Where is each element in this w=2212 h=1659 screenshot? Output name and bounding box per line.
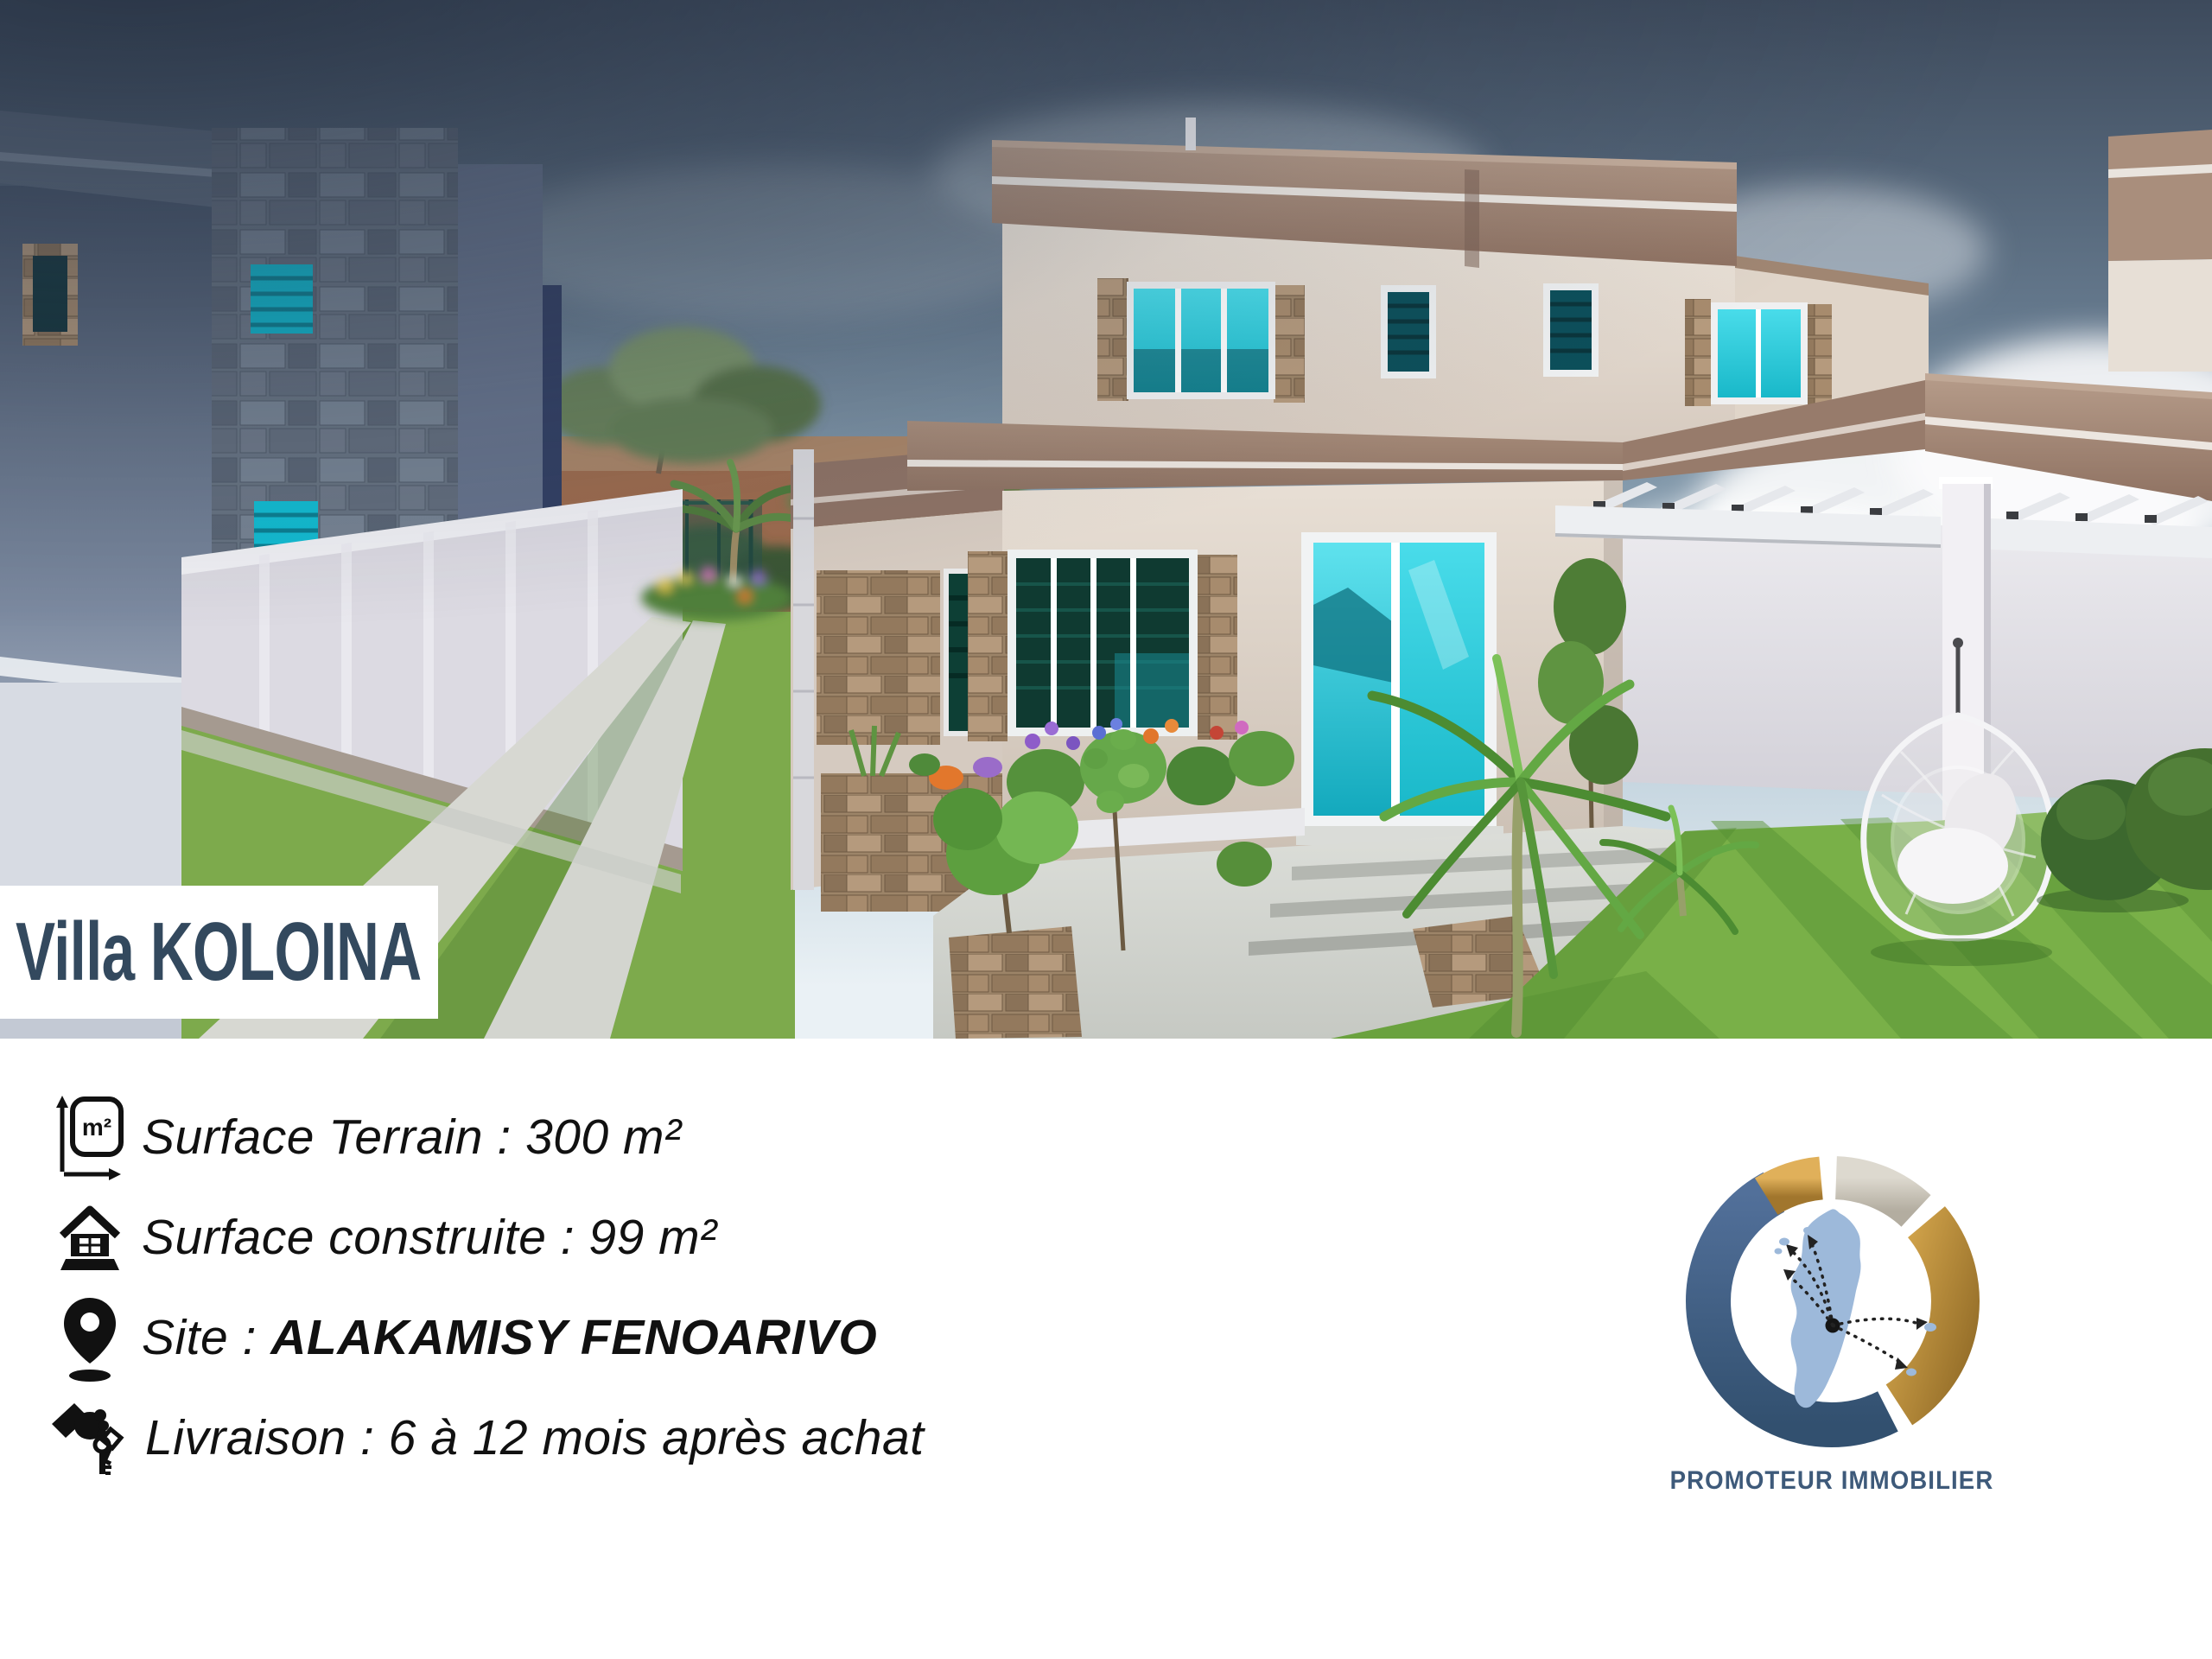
real-estate-flyer: Villa KOLOINA m² Surface Terrain : 300 m… [0, 0, 2212, 1659]
detail-value: 6 à 12 mois après achat [389, 1410, 925, 1465]
smoke-overlay [0, 0, 2212, 778]
logo-caption: PROMOTEUR IMMOBILIER [1669, 1466, 1994, 1496]
page-title: Villa KOLOINA [16, 905, 421, 1000]
logo-arc-gold-top [1766, 1179, 1821, 1197]
detail-separator: : [483, 1109, 525, 1165]
detail-separator: : [546, 1210, 588, 1265]
detail-separator: : [346, 1410, 389, 1465]
logo-arc-gold-right [1899, 1222, 1955, 1405]
detail-value: 99 m² [588, 1210, 716, 1265]
detail-label: Surface Terrain [142, 1109, 483, 1165]
detail-label: Livraison [145, 1410, 346, 1465]
detail-row-surface-terrain: m² Surface Terrain : 300 m² [50, 1087, 925, 1187]
house-icon [50, 1201, 130, 1274]
detail-label: Surface construite [142, 1210, 546, 1265]
area-icon: m² [50, 1092, 130, 1182]
area-icon-label: m² [82, 1114, 111, 1141]
villa-render-image [0, 0, 2212, 1039]
detail-row-livraison: Livraison : 6 à 12 mois après achat [50, 1388, 925, 1488]
detail-value: 300 m² [525, 1109, 681, 1165]
detail-row-surface-construite: Surface construite : 99 m² [50, 1187, 925, 1287]
title-banner: Villa KOLOINA [0, 886, 438, 1019]
key-handover-icon [50, 1393, 133, 1483]
logo-arc-silver [1836, 1178, 1916, 1211]
madagascar-map [1791, 1209, 1861, 1408]
logo-mark [1655, 1120, 2009, 1459]
detail-row-site: Site : ALAKAMISY FENOARIVO [50, 1287, 925, 1388]
location-pin-icon [50, 1293, 130, 1382]
detail-separator: : [228, 1310, 270, 1365]
detail-value: ALAKAMISY FENOARIVO [270, 1310, 877, 1365]
property-details: m² Surface Terrain : 300 m² Surface cons… [50, 1087, 925, 1488]
detail-label: Site [142, 1310, 228, 1365]
company-logo: PROMOTEUR IMMOBILIER [1655, 1120, 2009, 1496]
